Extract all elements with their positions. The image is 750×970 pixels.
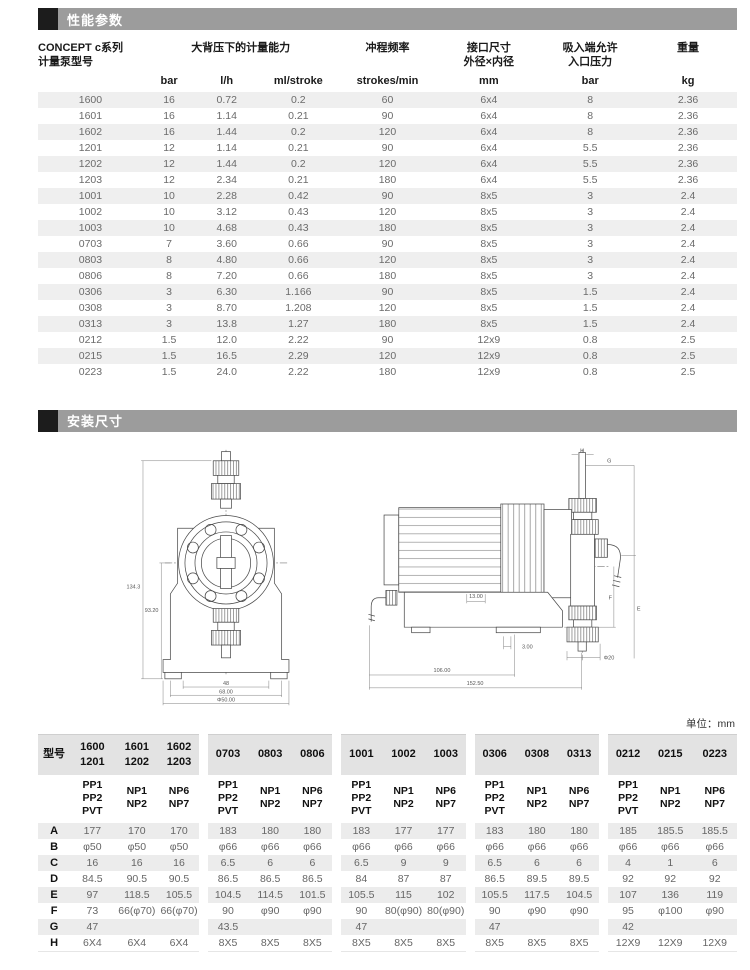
table-cell: 0.66 (258, 236, 338, 252)
table-cell: 136 (648, 887, 692, 903)
table-cell: 90.5 (115, 871, 159, 887)
table-cell: 8x5 (436, 252, 541, 268)
table-cell: 120 (339, 156, 437, 172)
table-cell: 90 (337, 903, 381, 919)
table-cell: 114.5 (248, 887, 292, 903)
table-cell: 2.4 (639, 252, 737, 268)
installation-section-title: 安装尺寸 (58, 411, 123, 430)
table-cell: 180 (248, 823, 292, 839)
table-cell: 6x4 (436, 172, 541, 188)
table-row: E97118.5105.5104.5114.5101.5105.51151021… (38, 887, 737, 903)
table-cell: 6.5 (337, 855, 381, 871)
table-cell: 8 (541, 108, 639, 124)
table-cell: 16 (143, 92, 195, 108)
table-cell: 4.68 (195, 220, 258, 236)
table-cell: 0.66 (258, 252, 338, 268)
table-cell: 0.72 (195, 92, 258, 108)
table-cell: 90 (470, 903, 514, 919)
pump-front-view-drawing: 134.3 93.20 48 68.00 Φ50.00 (121, 448, 331, 708)
table-cell: 0.2 (258, 156, 338, 172)
table-cell: 3 (143, 300, 195, 316)
table-cell: 5.5 (541, 140, 639, 156)
col-header-weight: 重量 (639, 40, 737, 72)
table-cell: 90 (339, 284, 437, 300)
table-cell (515, 919, 559, 935)
table-cell: 5.5 (541, 156, 639, 172)
table-cell: 0.43 (258, 204, 338, 220)
table-cell (381, 919, 425, 935)
table-row: C1616166.5666.5996.566416 (38, 855, 737, 871)
table-cell: 7.20 (195, 268, 258, 284)
performance-table-head: CONCEPT c系列 计量泵型号 大背压下的计量能力 冲程频率 接口尺寸 外径… (38, 40, 737, 92)
front-dim-total-height: 134.3 (126, 584, 140, 590)
table-cell: 86.5 (470, 871, 514, 887)
table-row: 080384.800.661208x532.4 (38, 252, 737, 268)
table-cell: 0223 (38, 364, 143, 380)
table-row: H6X46X46X48X58X58X58X58X58X58X58X58X512X… (38, 935, 737, 952)
table-cell: 6.5 (204, 855, 248, 871)
table-cell: 87 (426, 871, 470, 887)
installation-drawings: 134.3 93.20 48 68.00 Φ50.00 (38, 438, 737, 714)
model-col: 1601 1202 (115, 734, 159, 774)
table-cell: 3 (143, 284, 195, 300)
table-cell: 12x9 (436, 332, 541, 348)
table-cell: 86.5 (292, 871, 336, 887)
dimensions-table: 型号 1600 1201 1601 1202 1602 1203 0703 08… (38, 734, 737, 952)
table-cell: 177 (70, 823, 114, 839)
table-cell: 2.4 (639, 236, 737, 252)
table-cell: 180 (339, 316, 437, 332)
side-dim-e: E (636, 607, 640, 613)
table-cell: 120 (339, 124, 437, 140)
model-col: 0212 (604, 734, 648, 774)
table-row: F7366(φ70)66(φ70)90φ90φ909080(φ90)80(φ90… (38, 903, 737, 919)
table-cell: 0.43 (258, 220, 338, 236)
model-col: 0215 (648, 734, 692, 774)
table-cell (559, 919, 603, 935)
table-cell: 89.5 (515, 871, 559, 887)
table-cell: 0306 (38, 284, 143, 300)
table-cell: 2.5 (639, 348, 737, 364)
table-cell: 2.4 (639, 188, 737, 204)
material-col: NP6 NP7 (559, 775, 603, 823)
table-cell: 1.166 (258, 284, 338, 300)
table-cell: 8X5 (381, 935, 425, 952)
side-dim-diameter: Φ20 (603, 655, 614, 661)
table-cell: 0.21 (258, 172, 338, 188)
table-cell: 1.14 (195, 108, 258, 124)
table-cell: 180 (292, 823, 336, 839)
table-cell: A (38, 823, 70, 839)
table-cell: 180 (339, 364, 437, 380)
table-cell: 2.4 (639, 220, 737, 236)
table-cell: φ90 (692, 903, 737, 919)
table-cell: 180 (339, 220, 437, 236)
table-cell: 6 (292, 855, 336, 871)
table-cell: 92 (692, 871, 737, 887)
table-cell: 16.5 (195, 348, 258, 364)
table-cell: 0.66 (258, 268, 338, 284)
model-col: 1002 (381, 734, 425, 774)
table-cell: 0.21 (258, 140, 338, 156)
table-cell: φ66 (248, 839, 292, 855)
table-cell: 170 (159, 823, 203, 839)
table-cell: 104.5 (559, 887, 603, 903)
col-header-model: CONCEPT c系列 计量泵型号 (38, 40, 143, 72)
performance-section-title: 性能参数 (58, 10, 123, 29)
table-cell: 2.22 (258, 332, 338, 348)
table-cell: 24.0 (195, 364, 258, 380)
table-cell: 3 (143, 316, 195, 332)
table-cell: φ66 (648, 839, 692, 855)
model-col: 1001 (337, 734, 381, 774)
table-cell: 6x4 (436, 140, 541, 156)
table-cell: 16 (115, 855, 159, 871)
side-dim-length2: 152.50 (466, 681, 483, 687)
table-cell: 12X9 (692, 935, 737, 952)
table-cell: 3 (541, 188, 639, 204)
table-cell: 1.44 (195, 124, 258, 140)
table-cell: 8X5 (426, 935, 470, 952)
table-cell: 16 (159, 855, 203, 871)
table-cell: 0308 (38, 300, 143, 316)
table-cell: 2.4 (639, 204, 737, 220)
table-cell: 6x4 (436, 124, 541, 140)
table-cell: 90 (339, 236, 437, 252)
performance-table-body: 1600160.720.2606x482.361601161.140.21906… (38, 92, 737, 380)
table-cell: 180 (339, 268, 437, 284)
table-cell: 12x9 (436, 364, 541, 380)
table-cell: 12 (143, 156, 195, 172)
table-cell: G (38, 919, 70, 935)
table-cell: 2.4 (639, 284, 737, 300)
material-col: PP1 PP2 PVT (337, 775, 381, 823)
table-cell: 12X9 (648, 935, 692, 952)
table-cell: 102 (426, 887, 470, 903)
table-cell: 16 (143, 124, 195, 140)
table-cell: 185.5 (648, 823, 692, 839)
section-bar-square (38, 410, 58, 432)
table-cell: φ90 (248, 903, 292, 919)
material-col: NP6 NP7 (159, 775, 203, 823)
table-cell: φ66 (426, 839, 470, 855)
table-row: 02231.524.02.2218012x90.82.5 (38, 364, 737, 380)
table-cell: 8x5 (436, 236, 541, 252)
table-cell: 1.14 (195, 140, 258, 156)
side-dim-foot: 13.00 (469, 594, 483, 600)
table-cell: 2.36 (639, 92, 737, 108)
model-col: 0803 (248, 734, 292, 774)
table-cell: 1.208 (258, 300, 338, 316)
table-cell: 73 (70, 903, 114, 919)
table-cell (426, 919, 470, 935)
side-dim-g: G (607, 459, 611, 465)
table-cell: 1.5 (143, 348, 195, 364)
unit-lh: l/h (195, 72, 258, 92)
table-cell: 105.5 (159, 887, 203, 903)
table-cell (159, 919, 203, 935)
table-cell: 95 (604, 903, 648, 919)
table-cell: 120 (339, 204, 437, 220)
model-col: 0308 (515, 734, 559, 774)
table-row: 0313313.81.271808x51.52.4 (38, 316, 737, 332)
table-cell: F (38, 903, 70, 919)
table-cell: 1002 (38, 204, 143, 220)
table-cell: 1001 (38, 188, 143, 204)
material-col: PP1 PP2 PVT (204, 775, 248, 823)
table-cell: 1.5 (541, 316, 639, 332)
col-header-capacity: 大背压下的计量能力 (143, 40, 339, 72)
installation-section-header: 安装尺寸 (38, 410, 737, 432)
table-cell: 66(φ70) (159, 903, 203, 919)
table-cell: 3 (541, 252, 639, 268)
table-row: G4743.5474742 (38, 919, 737, 935)
table-cell: 0703 (38, 236, 143, 252)
table-cell: 84 (337, 871, 381, 887)
material-col: PP1 PP2 PVT (604, 775, 648, 823)
table-cell: 47 (337, 919, 381, 935)
table-cell: φ66 (470, 839, 514, 855)
table-cell: 3 (541, 204, 639, 220)
table-cell: 90 (339, 140, 437, 156)
material-row-blank (38, 775, 70, 823)
table-cell: 1602 (38, 124, 143, 140)
table-cell: 90 (339, 108, 437, 124)
table-cell: 0806 (38, 268, 143, 284)
table-row: 080687.200.661808x532.4 (38, 268, 737, 284)
table-cell: 12X9 (604, 935, 648, 952)
table-cell: 3.60 (195, 236, 258, 252)
table-cell: 10 (143, 220, 195, 236)
table-cell: 8X5 (292, 935, 336, 952)
table-cell: 1 (648, 855, 692, 871)
table-cell (248, 919, 292, 935)
table-cell: 0.8 (541, 364, 639, 380)
table-cell: 43.5 (204, 919, 248, 935)
table-cell: 6x4 (436, 156, 541, 172)
table-cell: 8x5 (436, 268, 541, 284)
material-col: NP6 NP7 (292, 775, 336, 823)
unit-blank (38, 72, 143, 92)
table-cell: 1.27 (258, 316, 338, 332)
table-cell: 8X5 (515, 935, 559, 952)
material-col: NP1 NP2 (515, 775, 559, 823)
table-cell: 180 (559, 823, 603, 839)
table-cell: 3 (541, 268, 639, 284)
table-cell: 12 (143, 140, 195, 156)
performance-table: CONCEPT c系列 计量泵型号 大背压下的计量能力 冲程频率 接口尺寸 外径… (38, 40, 737, 380)
table-cell: 8x5 (436, 300, 541, 316)
table-cell: 105.5 (470, 887, 514, 903)
table-cell: 6 (559, 855, 603, 871)
table-cell: 3 (541, 236, 639, 252)
unit-ml-stroke: ml/stroke (258, 72, 338, 92)
unit-strokes-min: strokes/min (339, 72, 437, 92)
table-cell: φ66 (292, 839, 336, 855)
unit-kg: kg (639, 72, 737, 92)
table-cell: 177 (381, 823, 425, 839)
table-cell: 1.5 (143, 364, 195, 380)
table-cell: 80(φ90) (381, 903, 425, 919)
table-row: 070373.600.66908x532.4 (38, 236, 737, 252)
table-cell: φ66 (381, 839, 425, 855)
table-cell: φ66 (559, 839, 603, 855)
model-col: 1602 1203 (159, 734, 203, 774)
table-row: 030838.701.2081208x51.52.4 (38, 300, 737, 316)
table-cell: 8x5 (436, 220, 541, 236)
side-dim-foot2: 3.00 (521, 644, 532, 650)
table-cell: 47 (70, 919, 114, 935)
table-cell: 80(φ90) (426, 903, 470, 919)
table-cell: 2.4 (639, 300, 737, 316)
unit-bar-suction: bar (541, 72, 639, 92)
table-row: 1001102.280.42908x532.4 (38, 188, 737, 204)
model-col: 0223 (692, 734, 737, 774)
table-cell: 47 (470, 919, 514, 935)
table-row: 030636.301.166908x51.52.4 (38, 284, 737, 300)
table-cell: φ66 (604, 839, 648, 855)
table-cell: 0.21 (258, 108, 338, 124)
table-cell: 183 (204, 823, 248, 839)
table-cell: 86.5 (204, 871, 248, 887)
table-cell: 0313 (38, 316, 143, 332)
unit-mm: mm (436, 72, 541, 92)
dimensions-table-body: A177170170183180180183177177183180180185… (38, 823, 737, 952)
table-cell: 92 (648, 871, 692, 887)
table-cell: 8x5 (436, 284, 541, 300)
table-row: D84.590.590.586.586.586.584878786.589.58… (38, 871, 737, 887)
table-cell: 6X4 (70, 935, 114, 952)
table-cell: 8X5 (559, 935, 603, 952)
table-cell: 8X5 (248, 935, 292, 952)
table-cell: 2.4 (639, 316, 737, 332)
table-cell: 2.28 (195, 188, 258, 204)
table-cell: 90 (339, 188, 437, 204)
table-cell: 185 (604, 823, 648, 839)
table-cell: 185.5 (692, 823, 737, 839)
table-cell: 6x4 (436, 108, 541, 124)
front-dim-diameter: Φ50.00 (216, 698, 234, 704)
unit-bar: bar (143, 72, 195, 92)
table-cell: 2.36 (639, 172, 737, 188)
table-cell: 118.5 (115, 887, 159, 903)
table-cell: 177 (426, 823, 470, 839)
table-cell: D (38, 871, 70, 887)
table-cell (115, 919, 159, 935)
table-cell: 2.36 (639, 156, 737, 172)
material-col: PP1 PP2 PVT (470, 775, 514, 823)
table-cell: 2.36 (639, 124, 737, 140)
table-cell: φ50 (159, 839, 203, 855)
table-row: A177170170183180180183177177183180180185… (38, 823, 737, 839)
table-cell: 107 (604, 887, 648, 903)
table-cell: 8x5 (436, 316, 541, 332)
table-cell: 4 (604, 855, 648, 871)
table-cell: E (38, 887, 70, 903)
table-cell: 2.4 (639, 268, 737, 284)
table-cell: 3 (541, 220, 639, 236)
table-cell: 1003 (38, 220, 143, 236)
table-row: 1203122.340.211806x45.52.36 (38, 172, 737, 188)
table-row: 1600160.720.2606x482.36 (38, 92, 737, 108)
table-cell: φ90 (292, 903, 336, 919)
table-cell: 2.29 (258, 348, 338, 364)
side-dim-h: H (580, 448, 584, 454)
table-cell: 12 (143, 172, 195, 188)
table-cell: 1.5 (541, 284, 639, 300)
table-cell: 8x5 (436, 188, 541, 204)
table-cell: 8.70 (195, 300, 258, 316)
table-cell: 105.5 (337, 887, 381, 903)
table-cell: 8X5 (470, 935, 514, 952)
table-cell: 120 (339, 348, 437, 364)
table-cell: 183 (337, 823, 381, 839)
table-cell: 120 (339, 252, 437, 268)
datasheet-page: 性能参数 CONCEPT c系列 计量泵型号 大背压下的计量能力 冲程频率 接口… (0, 0, 750, 952)
material-col: NP1 NP2 (648, 775, 692, 823)
unit-note: 单位：mm (38, 714, 737, 734)
table-cell: 90.5 (159, 871, 203, 887)
table-cell: 87 (381, 871, 425, 887)
table-cell: 0.8 (541, 332, 639, 348)
table-cell: 86.5 (248, 871, 292, 887)
col-header-connection-size: 接口尺寸 外径×内径 (436, 40, 541, 72)
table-cell: B (38, 839, 70, 855)
table-cell: φ66 (692, 839, 737, 855)
pump-side-view-drawing: H G 13.00 3.00 Φ20 106.00 152.50 F E (365, 447, 655, 709)
table-cell: φ50 (115, 839, 159, 855)
table-cell: 6X4 (159, 935, 203, 952)
table-cell: 8X5 (204, 935, 248, 952)
table-cell: 180 (515, 823, 559, 839)
table-cell: 90 (204, 903, 248, 919)
table-cell: φ50 (70, 839, 114, 855)
table-cell: 1.44 (195, 156, 258, 172)
col-header-stroke-frequency: 冲程频率 (339, 40, 437, 72)
table-cell: 0.42 (258, 188, 338, 204)
table-cell: 6x4 (436, 92, 541, 108)
table-cell: 66(φ70) (115, 903, 159, 919)
table-cell: 6.30 (195, 284, 258, 300)
model-col: 1600 1201 (70, 734, 114, 774)
table-cell: 89.5 (559, 871, 603, 887)
table-row: 1002103.120.431208x532.4 (38, 204, 737, 220)
table-cell: 0803 (38, 252, 143, 268)
table-cell: H (38, 935, 70, 952)
front-dim-feet: 48 (222, 681, 228, 687)
table-cell: φ66 (204, 839, 248, 855)
material-col: NP1 NP2 (381, 775, 425, 823)
table-cell: 90 (339, 332, 437, 348)
table-cell: C (38, 855, 70, 871)
table-cell: 6 (692, 855, 737, 871)
table-cell (648, 919, 692, 935)
table-cell: φ90 (559, 903, 603, 919)
table-cell: 0.8 (541, 348, 639, 364)
table-row: 02151.516.52.2912012x90.82.5 (38, 348, 737, 364)
table-cell: 0.2 (258, 92, 338, 108)
table-row: 1003104.680.431808x532.4 (38, 220, 737, 236)
model-col: 0806 (292, 734, 336, 774)
material-col: NP1 NP2 (115, 775, 159, 823)
table-cell: 6.5 (470, 855, 514, 871)
table-cell: 2.5 (639, 332, 737, 348)
table-cell: 1.5 (541, 300, 639, 316)
front-dim-base: 68.00 (219, 689, 233, 695)
table-cell: 2.22 (258, 364, 338, 380)
table-cell: 2.36 (639, 108, 737, 124)
section-bar-square (38, 8, 58, 30)
